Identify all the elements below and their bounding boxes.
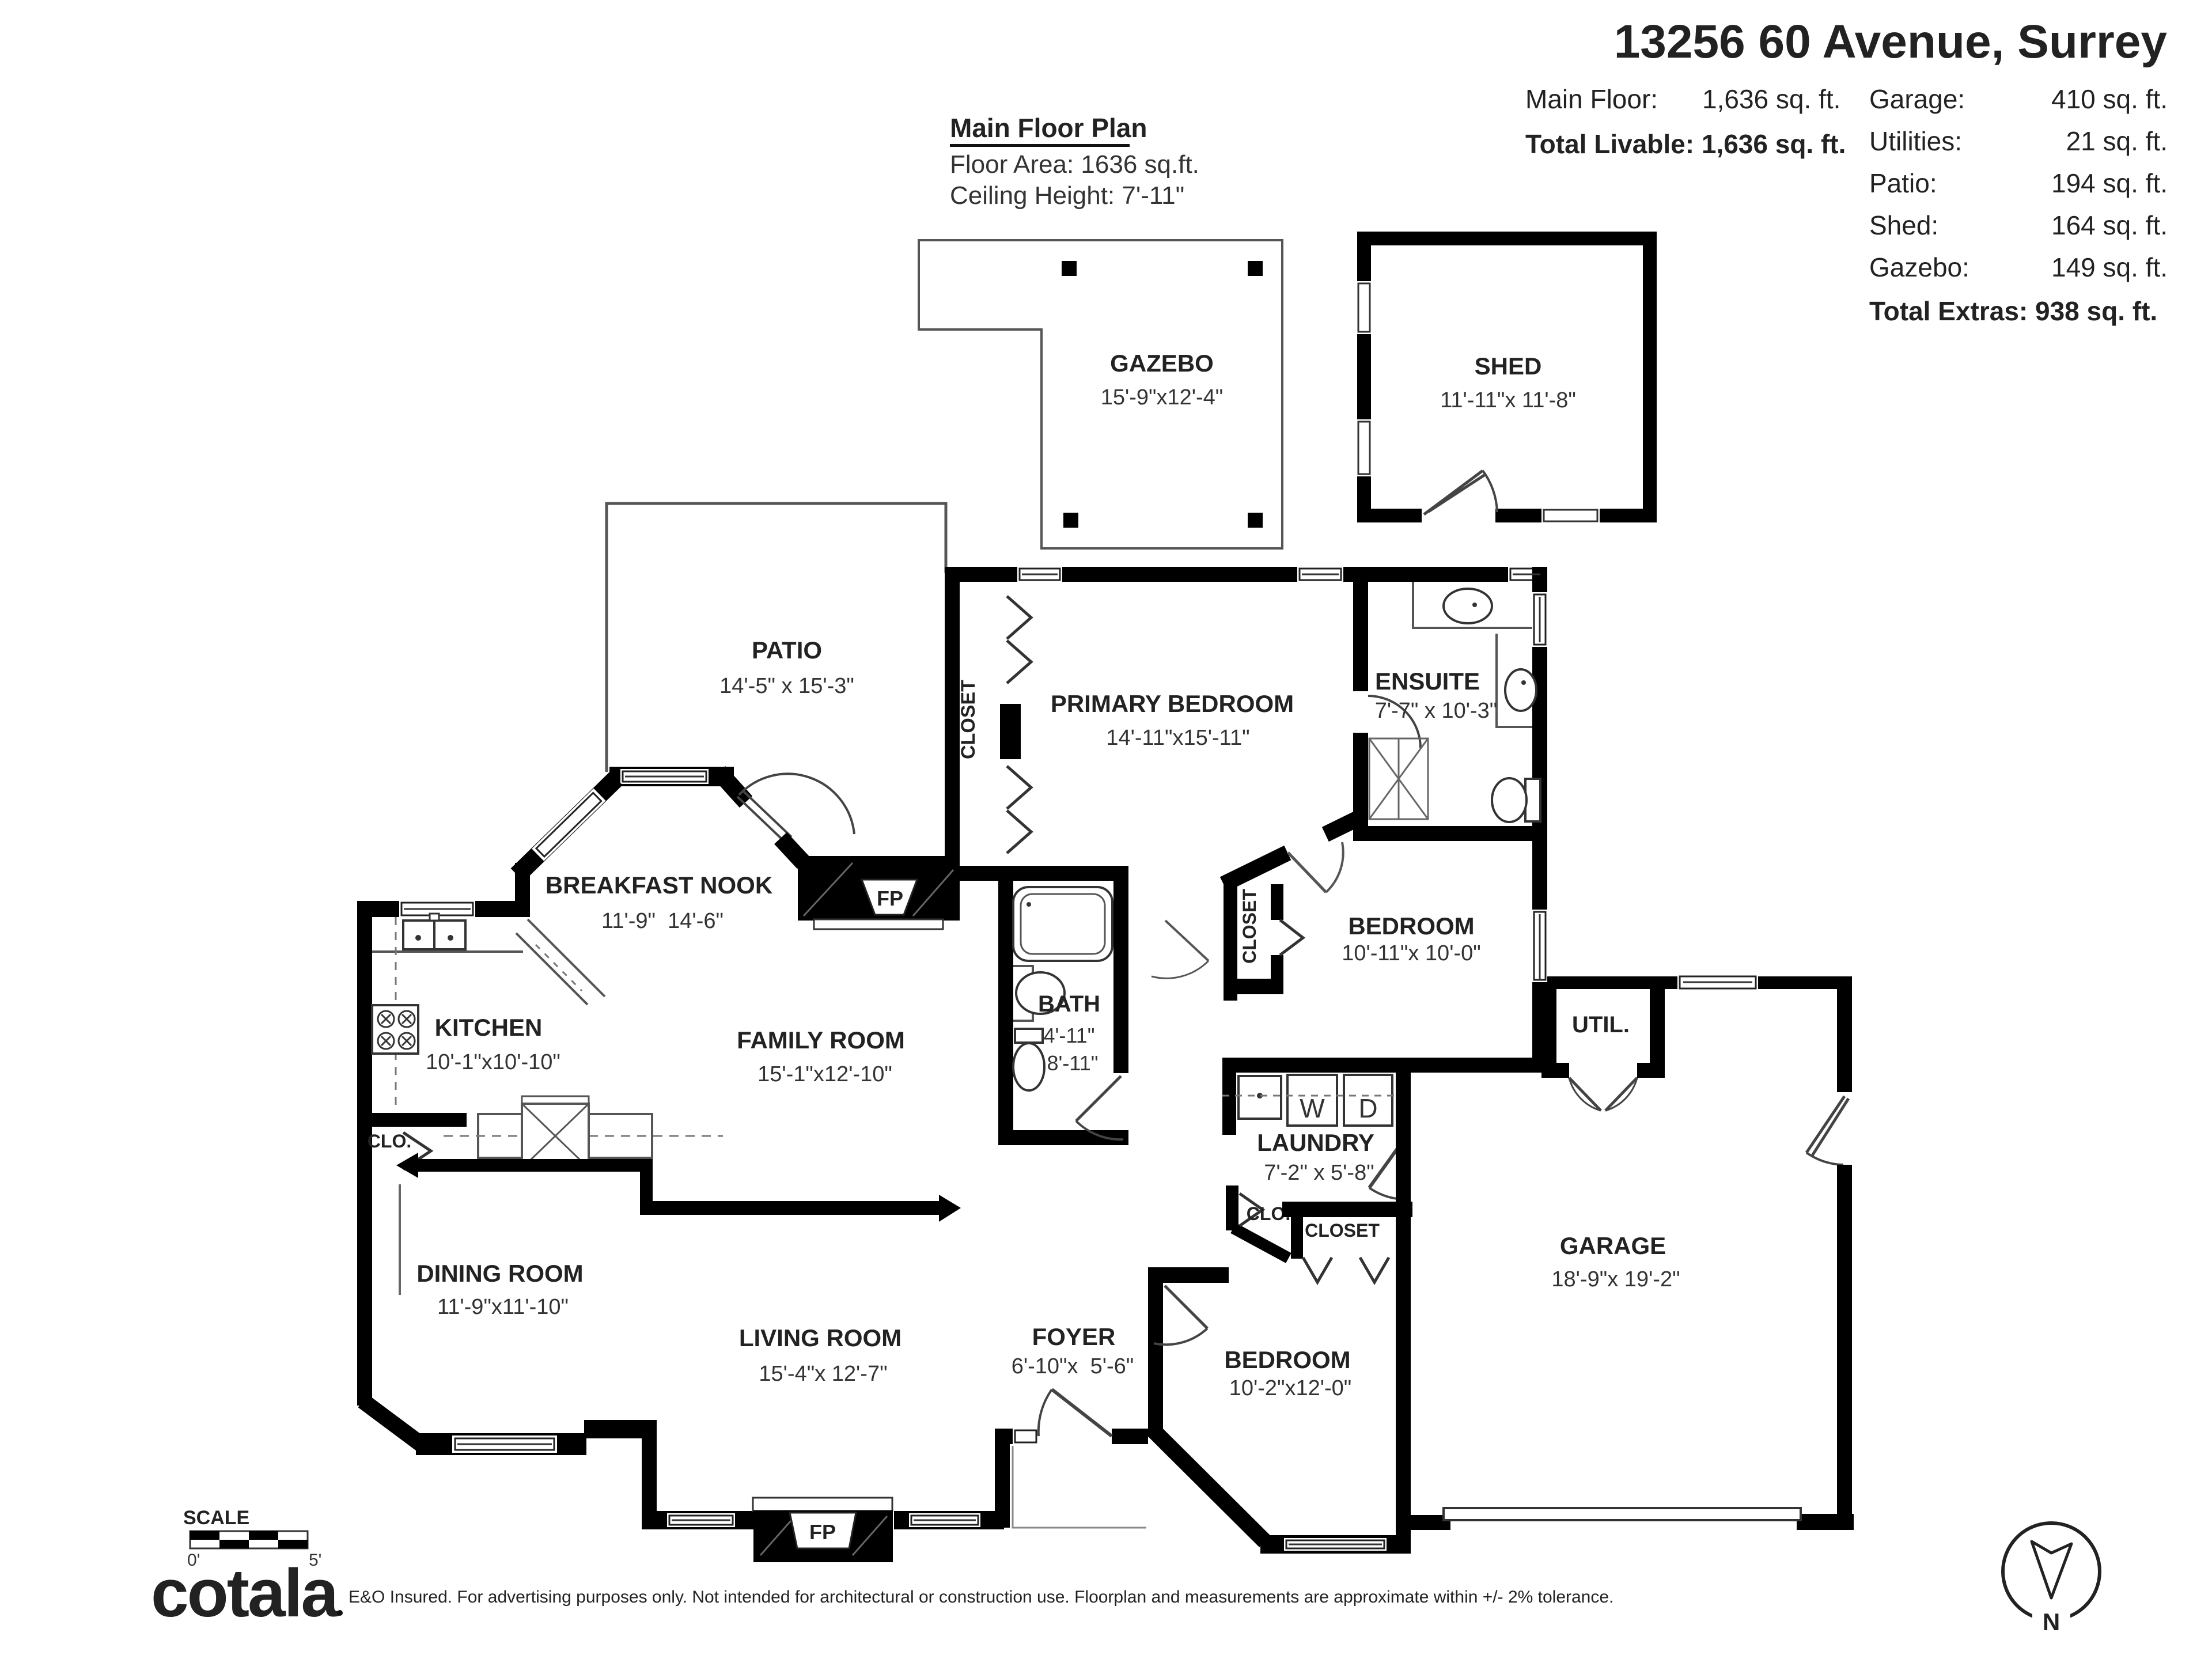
svg-text:18'-9"x 19'-2": 18'-9"x 19'-2" [1551,1267,1680,1291]
svg-text:149 sq. ft.: 149 sq. ft. [2051,252,2168,282]
svg-text:4'-11": 4'-11" [1043,1024,1094,1047]
svg-text:14'-11"x15'-11": 14'-11"x15'-11" [1106,726,1249,750]
svg-text:N: N [2043,1608,2060,1635]
svg-text:10'-1"x10'-10": 10'-1"x10'-10" [426,1050,560,1074]
svg-text:KITCHEN: KITCHEN [435,1014,543,1041]
svg-text:W: W [1300,1093,1325,1123]
svg-text:8'-11": 8'-11" [1047,1051,1098,1075]
svg-text:21 sq. ft.: 21 sq. ft. [2066,126,2168,156]
svg-text:11'-11"x 11'-8": 11'-11"x 11'-8" [1440,388,1576,412]
svg-text:10'-2"x12'-0": 10'-2"x12'-0" [1229,1376,1352,1400]
svg-text:Main Floor:: Main Floor: [1525,84,1658,114]
svg-text:FP: FP [809,1520,836,1544]
svg-text:15'-4"x 12'-7": 15'-4"x 12'-7" [759,1362,887,1386]
svg-text:FP: FP [877,887,903,910]
svg-text:15'-9"x12'-4": 15'-9"x12'-4" [1101,385,1224,410]
svg-text:E&O Insured. For advertising p: E&O Insured. For advertising purposes on… [349,1588,1613,1607]
svg-text:Shed:: Shed: [1869,210,1938,240]
svg-text:BEDROOM: BEDROOM [1224,1346,1350,1373]
svg-text:BREAKFAST NOOK: BREAKFAST NOOK [546,872,772,899]
svg-text:CLO.: CLO. [368,1131,411,1152]
svg-text:13256 60 Avenue, Surrey: 13256 60 Avenue, Surrey [1614,16,2168,68]
svg-text:Floor Area: 1636 sq.ft.: Floor Area: 1636 sq.ft. [950,150,1199,179]
svg-text:1,636 sq. ft.: 1,636 sq. ft. [1702,84,1840,114]
svg-text:6'-10"x 5'-6": 6'-10"x 5'-6" [1012,1354,1134,1378]
svg-text:BEDROOM: BEDROOM [1348,912,1474,940]
svg-text:410 sq. ft.: 410 sq. ft. [2051,84,2168,114]
svg-text:7'-2" x 5'-8": 7'-2" x 5'-8" [1264,1161,1374,1185]
svg-text:BATH: BATH [1038,991,1100,1017]
svg-text:Utilities:: Utilities: [1869,126,1962,156]
svg-text:SCALE: SCALE [183,1507,249,1529]
svg-text:Total Extras: 938 sq. ft.: Total Extras: 938 sq. ft. [1869,296,2157,326]
svg-text:Gazebo:: Gazebo: [1869,252,1969,282]
svg-text:PATIO: PATIO [752,637,822,664]
svg-text:DINING ROOM: DINING ROOM [416,1260,583,1287]
svg-text:Garage:: Garage: [1869,84,1965,114]
svg-text:Ceiling Height: 7'-11": Ceiling Height: 7'-11" [950,181,1184,210]
svg-text:GARAGE: GARAGE [1560,1232,1666,1259]
svg-text:FAMILY ROOM: FAMILY ROOM [737,1027,905,1054]
svg-text:FOYER: FOYER [1032,1323,1116,1350]
svg-text:UTIL.: UTIL. [1572,1012,1630,1037]
svg-text:SHED: SHED [1475,353,1542,380]
svg-text:11'-9" 14'-6": 11'-9" 14'-6" [601,909,724,933]
svg-text:GAZEBO: GAZEBO [1110,350,1214,377]
svg-text:Patio:: Patio: [1869,168,1937,198]
svg-text:CLOSET: CLOSET [1239,889,1260,964]
svg-text:LIVING ROOM: LIVING ROOM [739,1324,902,1351]
svg-text:PRIMARY BEDROOM: PRIMARY BEDROOM [1051,690,1294,717]
svg-text:Total Livable: 1,636 sq. ft.: Total Livable: 1,636 sq. ft. [1525,129,1846,159]
svg-text:CLOSET: CLOSET [957,680,979,759]
svg-text:ENSUITE: ENSUITE [1375,668,1480,695]
svg-text:194 sq. ft.: 194 sq. ft. [2051,168,2168,198]
svg-text:LAUNDRY: LAUNDRY [1257,1129,1374,1156]
svg-text:15'-1"x12'-10": 15'-1"x12'-10" [757,1062,892,1086]
svg-text:11'-9"x11'-10": 11'-9"x11'-10" [437,1295,569,1319]
svg-text:D: D [1358,1093,1377,1123]
svg-text:7'-7" x 10'-3": 7'-7" x 10'-3" [1375,699,1498,723]
svg-text:14'-5" x 15'-3": 14'-5" x 15'-3" [719,674,854,698]
svg-text:cotala: cotala [151,1555,339,1631]
svg-text:10'-11"x 10'-0": 10'-11"x 10'-0" [1342,941,1480,965]
svg-text:CLOSET: CLOSET [1305,1220,1380,1241]
svg-text:Main Floor Plan: Main Floor Plan [950,113,1147,143]
svg-text:164 sq. ft.: 164 sq. ft. [2051,210,2168,240]
